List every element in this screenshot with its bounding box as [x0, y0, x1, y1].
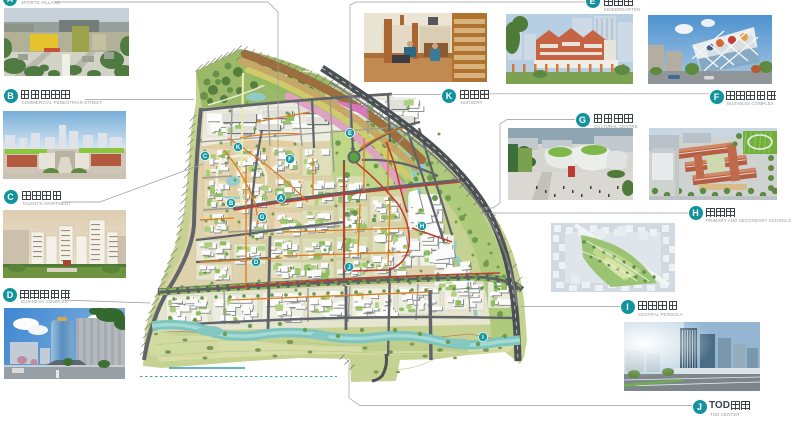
svg-text:C: C — [203, 154, 208, 160]
svg-text:D: D — [254, 260, 259, 266]
svg-text:K: K — [236, 145, 241, 151]
svg-text:F: F — [288, 157, 292, 163]
svg-text:J: J — [347, 265, 350, 271]
svg-text:E: E — [348, 131, 352, 137]
svg-text:H: H — [420, 224, 424, 230]
svg-text:G: G — [260, 215, 265, 221]
svg-text:B: B — [229, 201, 234, 207]
svg-text:A: A — [279, 196, 284, 202]
